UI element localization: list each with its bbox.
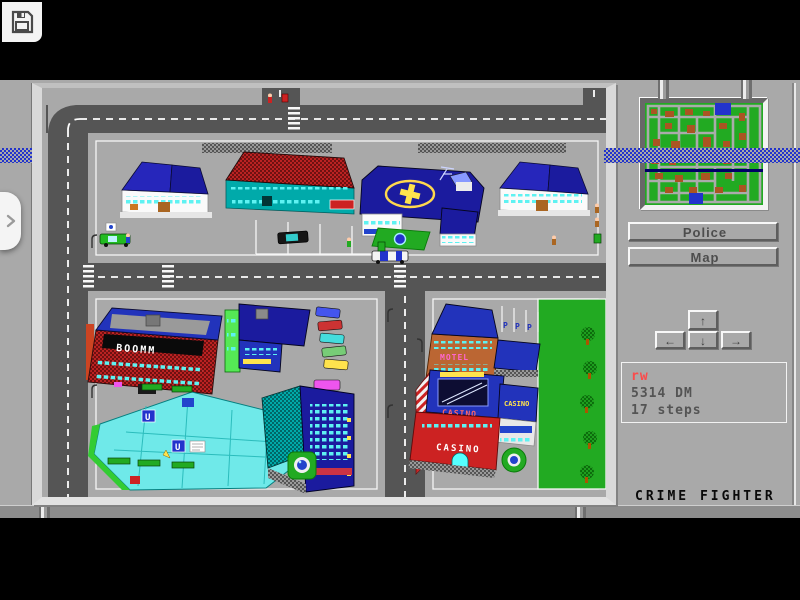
game-screen: BOOMM xyxy=(0,80,800,518)
map-button[interactable]: Map xyxy=(628,247,778,266)
blue-stripe-right xyxy=(604,148,800,163)
motel-sign: MOTEL xyxy=(440,353,469,362)
move-right-button[interactable]: → xyxy=(721,331,751,349)
building-club-red-roof[interactable] xyxy=(226,152,354,214)
move-down-button[interactable]: ↓ xyxy=(688,331,718,349)
game-title: CRIME FIGHTER xyxy=(635,489,776,504)
minimap-post-left xyxy=(658,80,669,99)
move-left-button[interactable]: ← xyxy=(655,331,685,349)
svg-text:U: U xyxy=(145,413,150,423)
minimap-water-north xyxy=(715,103,731,115)
plaza-fountain xyxy=(288,452,316,479)
status-box: rw 5314 DM 17 steps xyxy=(621,362,787,423)
mall-sign-u1: U xyxy=(142,410,155,423)
minimap-post-right xyxy=(741,80,752,99)
mall-sign-u2: U xyxy=(172,440,185,453)
crime-fighter-screen: BOOMM xyxy=(0,0,800,600)
mailbox xyxy=(282,94,288,102)
police-button[interactable]: Police xyxy=(628,222,778,241)
svg-text:U: U xyxy=(175,443,180,453)
park[interactable] xyxy=(538,299,606,489)
player-name: rw xyxy=(631,368,777,385)
money-value: 5314 DM xyxy=(631,385,777,402)
casino-fountain xyxy=(502,448,526,472)
city-map-window: BOOMM xyxy=(32,83,616,505)
police-station[interactable] xyxy=(360,166,484,250)
svg-text:P: P xyxy=(515,322,520,331)
sidebar-expand-handle[interactable] xyxy=(0,192,21,250)
svg-text:P: P xyxy=(527,323,532,332)
save-button[interactable] xyxy=(2,2,42,42)
floppy-disk-icon xyxy=(9,9,35,35)
disco-boomm[interactable]: BOOMM xyxy=(86,308,222,394)
parked-dark-car xyxy=(278,231,309,244)
casino-annex-sign: CASINO xyxy=(504,400,529,408)
svg-text:P: P xyxy=(503,321,508,330)
panel-right-edge xyxy=(792,83,794,505)
top-black-bar xyxy=(0,0,800,80)
fountain xyxy=(395,234,406,245)
chevron-right-icon xyxy=(6,214,16,228)
blue-stripe-left xyxy=(0,148,32,163)
city-map-viewport[interactable]: BOOMM xyxy=(42,88,606,497)
minimap-water-south xyxy=(689,193,703,204)
move-up-button[interactable]: ↑ xyxy=(688,310,718,330)
steps-value: 17 steps xyxy=(631,402,777,419)
bottom-black-bar xyxy=(0,518,800,600)
screen-bottom-edge xyxy=(0,505,800,519)
